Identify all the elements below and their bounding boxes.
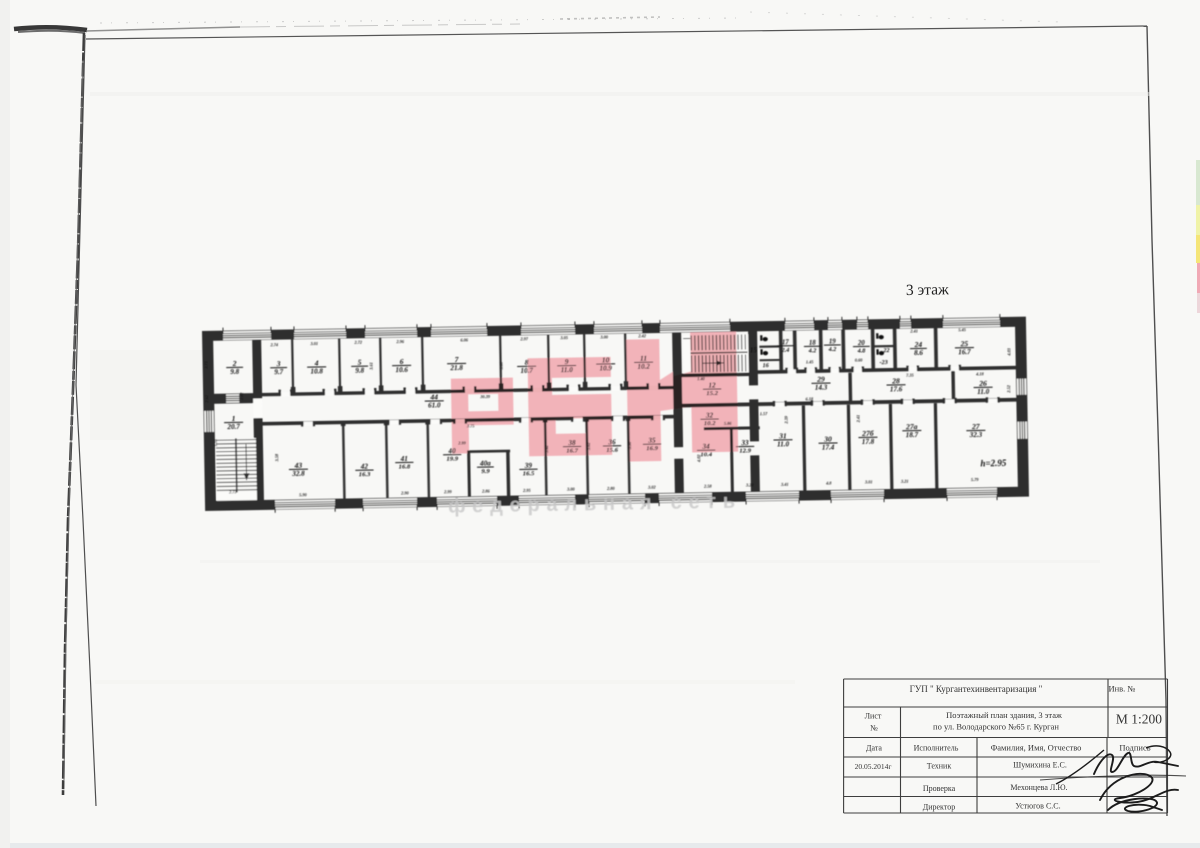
svg-text:6: 6	[400, 357, 404, 366]
svg-text:6.06: 6.06	[460, 337, 468, 342]
svg-text:26: 26	[978, 379, 987, 388]
svg-text:14.3: 14.3	[815, 384, 828, 392]
svg-text:16: 16	[763, 362, 770, 369]
svg-text:3.20: 3.20	[745, 482, 754, 487]
svg-text:Устюгов С.С.: Устюгов С.С.	[1015, 802, 1060, 811]
svg-text:Директор: Директор	[923, 803, 955, 812]
svg-text:5: 5	[358, 358, 362, 367]
svg-text:3.58: 3.58	[274, 453, 279, 462]
svg-text:9.8: 9.8	[230, 368, 239, 376]
svg-text:25: 25	[959, 339, 968, 348]
svg-text:5.79: 5.79	[971, 477, 979, 482]
svg-text:4.18: 4.18	[975, 371, 984, 376]
svg-text:20.05.2014г: 20.05.2014г	[855, 762, 892, 771]
svg-text:10.8: 10.8	[310, 367, 323, 375]
svg-text:3.60: 3.60	[499, 361, 504, 370]
svg-text:Поэтажный план здания, 3 этаж: Поэтажный план здания, 3 этаж	[946, 710, 1062, 720]
svg-text:по ул. Володарского №65 г. Кур: по ул. Володарского №65 г. Курган	[933, 722, 1059, 732]
svg-text:ГУП " Кургантехинвентаризация: ГУП " Кургантехинвентаризация "	[910, 684, 1043, 694]
svg-text:3.00: 3.00	[599, 334, 608, 339]
svg-text:2: 2	[232, 359, 237, 368]
svg-text:2.39: 2.39	[784, 415, 789, 424]
svg-text:27б: 27б	[861, 429, 875, 438]
svg-text:17.4: 17.4	[822, 444, 835, 452]
svg-text:Фамилия, Имя, Отчество: Фамилия, Имя, Отчество	[991, 743, 1082, 753]
svg-text:3 этаж: 3 этаж	[906, 281, 949, 299]
svg-text:Дата: Дата	[866, 744, 882, 753]
svg-text:1.55: 1.55	[213, 438, 218, 446]
svg-text:Шумихина Е.С.: Шумихина Е.С.	[1013, 761, 1067, 770]
svg-text:3.61: 3.61	[369, 362, 374, 371]
svg-text:3.01: 3.01	[864, 479, 873, 484]
svg-text:-23: -23	[879, 359, 887, 366]
svg-text:9.7: 9.7	[274, 368, 283, 376]
svg-text:2.4: 2.4	[780, 347, 789, 354]
svg-text:32.3: 32.3	[969, 431, 983, 439]
svg-text:2.80: 2.80	[606, 486, 615, 491]
svg-text:3: 3	[276, 359, 281, 368]
svg-text:3.01: 3.01	[309, 341, 318, 346]
svg-text:9.9: 9.9	[481, 468, 490, 475]
svg-text:41: 41	[400, 455, 408, 463]
svg-text:2.74: 2.74	[269, 342, 278, 347]
svg-text:7.35: 7.35	[906, 373, 914, 378]
svg-text:2.90: 2.90	[400, 490, 409, 495]
svg-text:18: 18	[809, 340, 817, 347]
svg-text:Лист: Лист	[865, 712, 882, 721]
svg-text:4.03: 4.03	[1006, 347, 1011, 356]
svg-text:21.8: 21.8	[449, 364, 463, 372]
svg-text:3.21: 3.21	[900, 479, 909, 484]
svg-text:8.6: 8.6	[914, 349, 923, 357]
svg-text:2.58: 2.58	[703, 484, 712, 489]
svg-text:4.2: 4.2	[827, 346, 836, 353]
svg-text:2.99: 2.99	[443, 489, 452, 494]
svg-text:15: 15	[750, 346, 758, 354]
svg-text:17: 17	[782, 339, 790, 346]
svg-text:4.2: 4.2	[807, 347, 816, 354]
svg-text:Инв. №: Инв. №	[1108, 684, 1135, 694]
svg-text:28: 28	[891, 376, 900, 385]
svg-text:2.02: 2.02	[239, 392, 244, 401]
svg-text:17.8: 17.8	[862, 438, 875, 446]
svg-text:12.9: 12.9	[739, 448, 751, 455]
svg-text:2.95: 2.95	[522, 488, 531, 493]
svg-text:27: 27	[971, 422, 981, 431]
svg-text:39: 39	[524, 462, 533, 470]
svg-text:16.3: 16.3	[359, 471, 371, 478]
svg-text:1.45: 1.45	[806, 359, 814, 364]
svg-text:3.02: 3.02	[647, 485, 656, 490]
svg-text:22: 22	[882, 347, 889, 354]
svg-text:20.7: 20.7	[226, 423, 240, 431]
svg-text:h=2.95: h=2.95	[980, 458, 1007, 468]
svg-text:30.39: 30.39	[479, 394, 491, 399]
svg-text:2.41: 2.41	[909, 329, 918, 334]
svg-text:33: 33	[740, 439, 749, 447]
svg-text:44: 44	[429, 392, 438, 401]
svg-text:6.18: 6.18	[805, 396, 813, 401]
svg-text:4.02: 4.02	[696, 454, 701, 463]
svg-text:17.6: 17.6	[890, 385, 903, 393]
svg-text:3.41: 3.41	[780, 482, 789, 487]
svg-text:31: 31	[778, 431, 787, 440]
svg-text:2.41: 2.41	[856, 415, 861, 424]
svg-text:2.72: 2.72	[353, 340, 362, 345]
svg-text:2.62: 2.62	[204, 394, 209, 403]
svg-text:2.96: 2.96	[395, 339, 404, 344]
svg-text:1: 1	[232, 414, 236, 423]
svg-text:18.7: 18.7	[906, 431, 919, 439]
svg-text:Мехонцева Л.Ю.: Мехонцева Л.Ю.	[1010, 783, 1067, 792]
svg-text:32.8: 32.8	[291, 470, 305, 478]
svg-text:9.8: 9.8	[355, 367, 364, 375]
svg-text:3.71: 3.71	[204, 361, 209, 370]
svg-text:11.0: 11.0	[977, 388, 990, 396]
svg-text:11.0: 11.0	[777, 440, 790, 448]
svg-text:2.86: 2.86	[481, 488, 490, 493]
svg-text:4: 4	[314, 358, 319, 367]
svg-text:Исполнитель: Исполнитель	[914, 744, 959, 753]
svg-text:19.9: 19.9	[446, 456, 458, 463]
svg-text:4.8: 4.8	[825, 481, 832, 486]
svg-text:0.60: 0.60	[855, 357, 863, 362]
svg-text:16.8: 16.8	[398, 464, 410, 471]
svg-text:2.52: 2.52	[1006, 384, 1011, 393]
svg-text:2.73: 2.73	[228, 489, 237, 494]
svg-text:61.0: 61.0	[428, 401, 441, 409]
svg-text:Проверка: Проверка	[923, 784, 956, 793]
svg-text:30: 30	[823, 435, 832, 444]
svg-text:5.45: 5.45	[958, 327, 966, 332]
svg-text:19: 19	[829, 338, 837, 345]
svg-text:Техник: Техник	[927, 762, 952, 771]
svg-text:М 1:200: М 1:200	[1116, 712, 1162, 727]
svg-text:27а: 27а	[905, 422, 918, 431]
svg-text:2.42: 2.42	[637, 333, 646, 338]
svg-text:10.4: 10.4	[700, 451, 712, 458]
svg-text:40а: 40а	[479, 459, 491, 467]
svg-text:1.57: 1.57	[760, 411, 768, 416]
svg-text:29: 29	[816, 375, 825, 384]
svg-text:16.5: 16.5	[523, 470, 535, 477]
svg-text:2.97: 2.97	[519, 336, 528, 341]
svg-text:43: 43	[293, 461, 302, 470]
svg-text:10.6: 10.6	[395, 366, 408, 374]
svg-text:3.00: 3.00	[566, 487, 575, 492]
svg-text:№: №	[870, 724, 878, 733]
svg-text:5.90: 5.90	[299, 492, 307, 497]
svg-text:3.05: 3.05	[559, 335, 568, 340]
svg-text:24: 24	[913, 340, 922, 349]
svg-text:42: 42	[360, 463, 369, 471]
svg-text:4.8: 4.8	[856, 347, 866, 354]
svg-text:16.7: 16.7	[958, 348, 971, 356]
